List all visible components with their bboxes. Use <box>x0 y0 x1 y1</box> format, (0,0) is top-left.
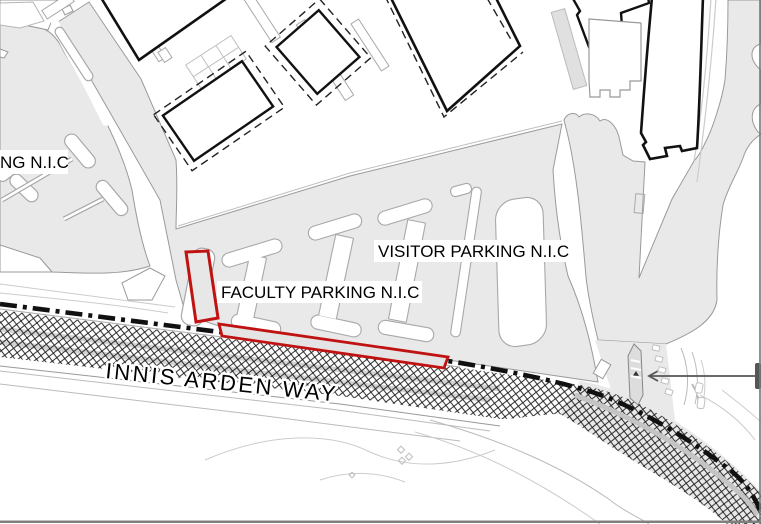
svg-text:FACULTY PARKING N.I.C: FACULTY PARKING N.I.C <box>221 283 419 302</box>
svg-text:VISITOR PARKING N.I.C: VISITOR PARKING N.I.C <box>378 242 569 261</box>
svg-text:NG N.I.C: NG N.I.C <box>0 153 69 172</box>
